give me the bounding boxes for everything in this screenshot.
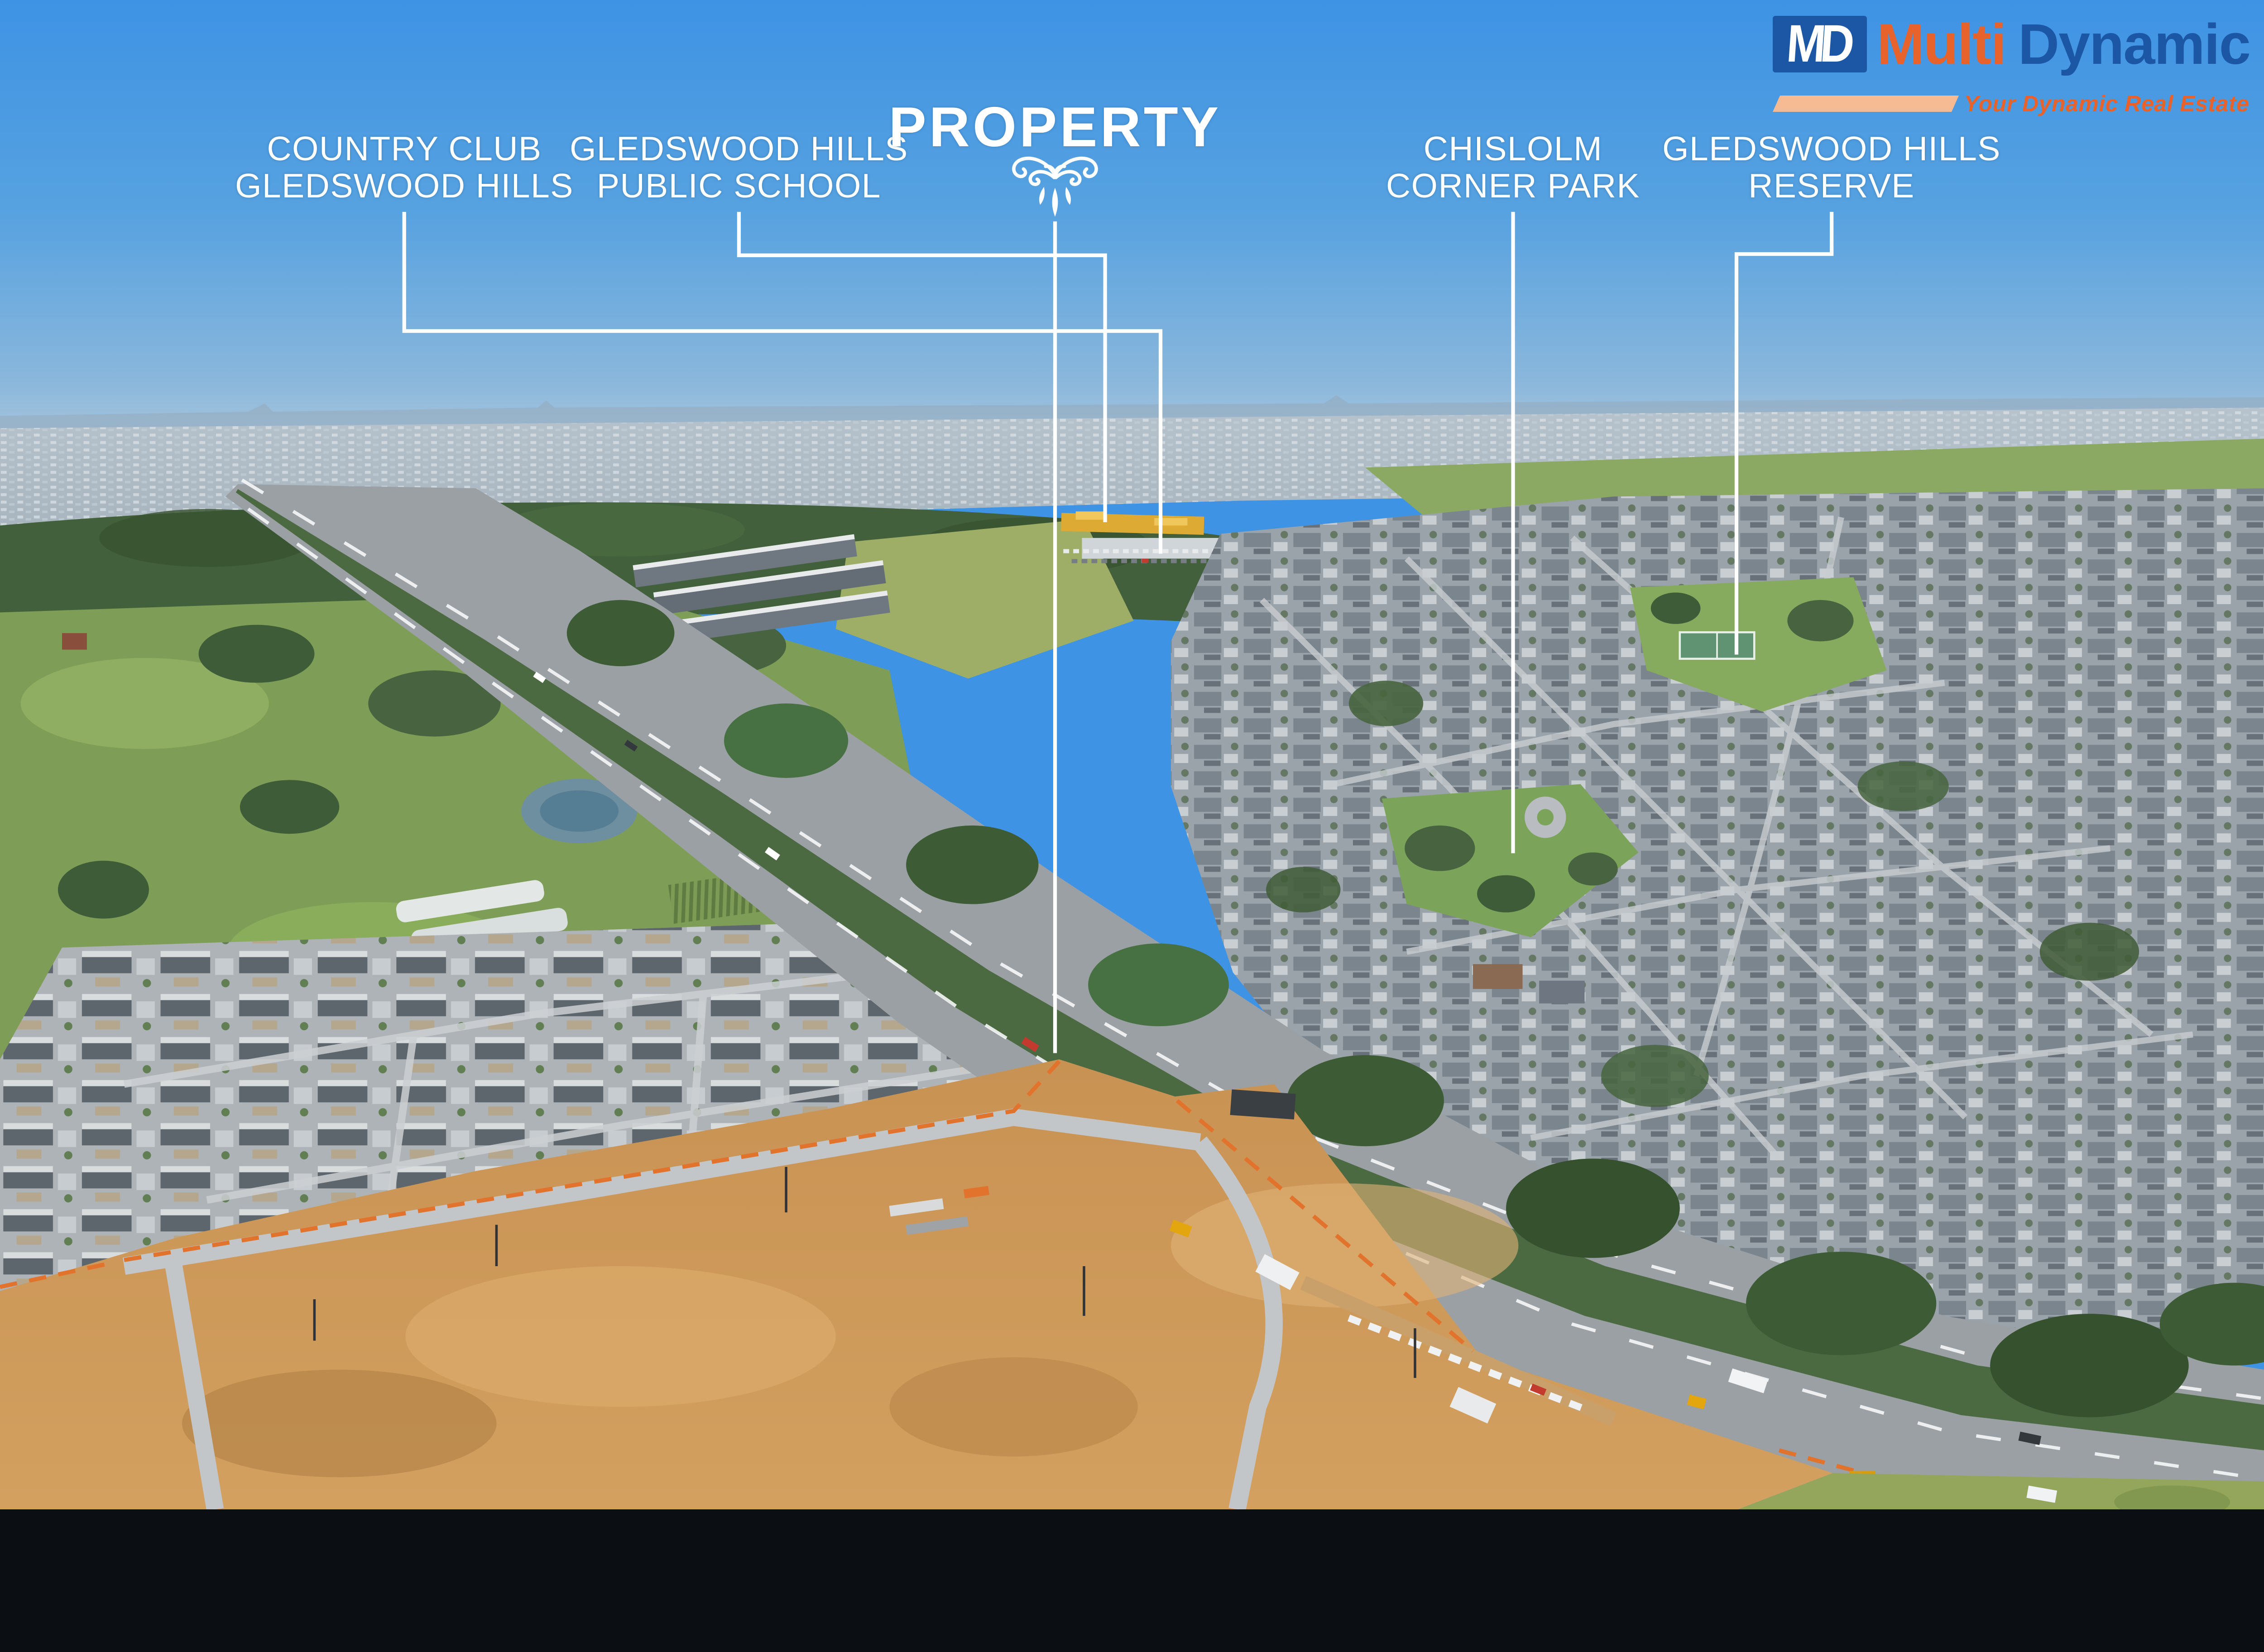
flourish-icon xyxy=(1000,149,1111,221)
annotation-line1: CHISLOLM xyxy=(1386,130,1640,168)
brand-name-multi: Multi xyxy=(1877,12,2005,76)
annotation-line1: COUNTRY CLUB xyxy=(235,130,574,168)
annotation-line1: GLEDSWOOD HILLS xyxy=(570,130,908,168)
annotation-public-school: GLEDSWOOD HILLS PUBLIC SCHOOL xyxy=(570,130,908,205)
annotation-line2: PUBLIC SCHOOL xyxy=(570,168,908,205)
annotation-line2: CORNER PARK xyxy=(1386,168,1640,205)
annotation-corner-park: CHISLOLM CORNER PARK xyxy=(1386,130,1640,205)
aerial-photo xyxy=(0,0,2264,1509)
annotation-line2: RESERVE xyxy=(1662,168,2001,205)
md-monogram: MD xyxy=(1784,14,1855,74)
brand-tagline: Your Dynamic Real Estate xyxy=(1964,91,2250,117)
annotation-line2: GLEDSWOOD HILLS xyxy=(235,168,574,205)
annotation-country-club: COUNTRY CLUB GLEDSWOOD HILLS xyxy=(235,130,574,205)
tagline-bar xyxy=(1773,96,1959,112)
billboard xyxy=(1230,1090,1296,1119)
aerial-marketing-image: COUNTRY CLUB GLEDSWOOD HILLS GLEDSWOOD H… xyxy=(0,0,2264,1509)
clubhouse xyxy=(1082,538,1223,559)
brand-logo: MD MultiDynamic Your Dynamic Real Estate xyxy=(1773,11,2250,117)
annotation-reserve: GLEDSWOOD HILLS RESERVE xyxy=(1662,130,2001,205)
annotation-line1: GLEDSWOOD HILLS xyxy=(1662,130,2001,168)
brand-name: MultiDynamic xyxy=(1877,11,2250,77)
brand-name-dynamic: Dynamic xyxy=(2018,12,2250,76)
md-monogram-box: MD xyxy=(1773,16,1867,72)
